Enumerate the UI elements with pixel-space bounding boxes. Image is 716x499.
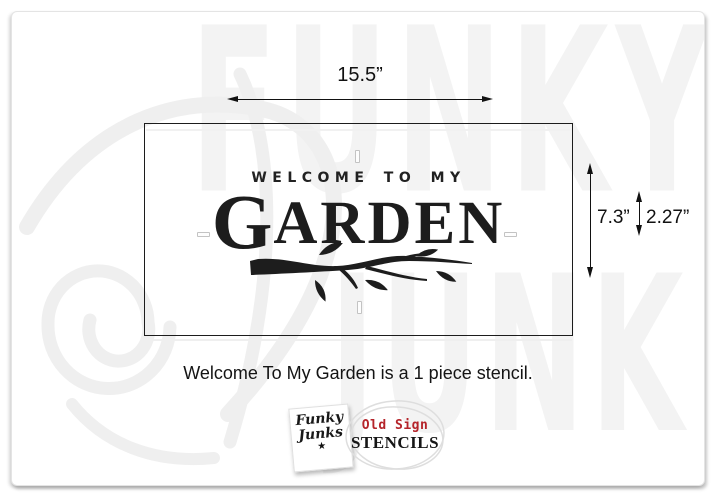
old-sign-stencils-badge: Old Sign STENCILS xyxy=(343,399,447,475)
product-image: FUNKY JUNK 15.5” WELCOME TO MY GARDEN xyxy=(0,0,716,499)
height-dimension-arrow xyxy=(586,163,595,278)
width-dimension-label: 15.5” xyxy=(227,64,493,87)
badge-stencils-label: STENCILS xyxy=(343,433,447,453)
registration-mark-left xyxy=(197,232,210,237)
product-card: FUNKY JUNK 15.5” WELCOME TO MY GARDEN xyxy=(11,11,705,486)
letter-height-arrow xyxy=(635,191,644,236)
letter-height-label: 2.27” xyxy=(646,207,689,229)
registration-mark-right xyxy=(504,232,517,237)
stencil-sheet-edge xyxy=(146,129,571,131)
branch-icon xyxy=(249,243,474,311)
registration-mark-top xyxy=(355,150,360,163)
stencil-sheet-edge-bottom xyxy=(144,339,572,341)
brand-logos: Funky Junks ★ Old Sign STENCILS xyxy=(12,398,704,478)
height-dimension-label: 7.3” xyxy=(597,207,630,229)
caption: Welcome To My Garden is a 1 piece stenci… xyxy=(12,363,704,384)
width-dimension-arrow xyxy=(227,95,493,104)
badge-old-sign-label: Old Sign xyxy=(343,418,447,433)
